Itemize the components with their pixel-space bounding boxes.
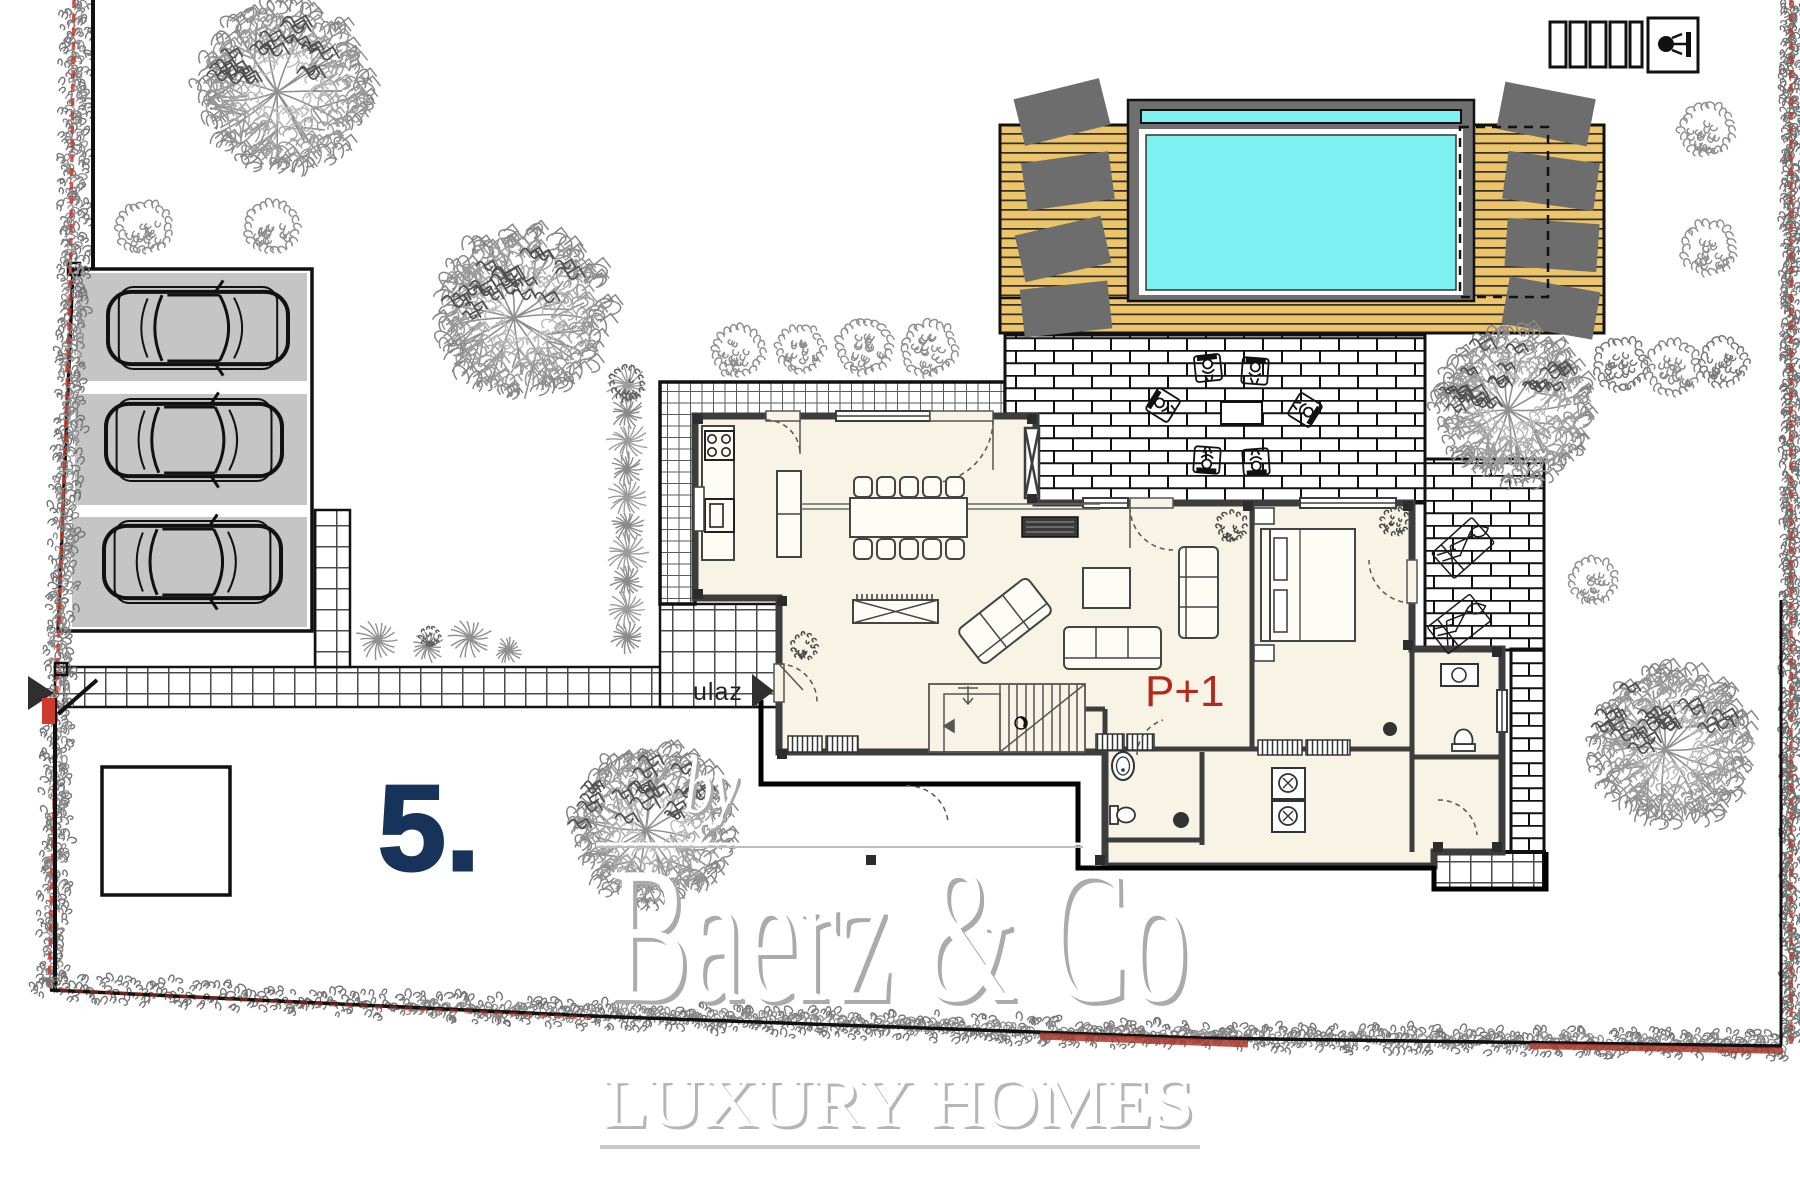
svg-text:P+1: P+1 [1145, 667, 1225, 716]
svg-text:Baerz & Co: Baerz & Co [608, 827, 1188, 1043]
svg-text:by: by [684, 742, 738, 829]
svg-text:LUXURY HOMES: LUXURY HOMES [602, 1065, 1194, 1142]
svg-text:5.: 5. [378, 760, 480, 896]
svg-text:ulaz: ulaz [693, 678, 743, 706]
